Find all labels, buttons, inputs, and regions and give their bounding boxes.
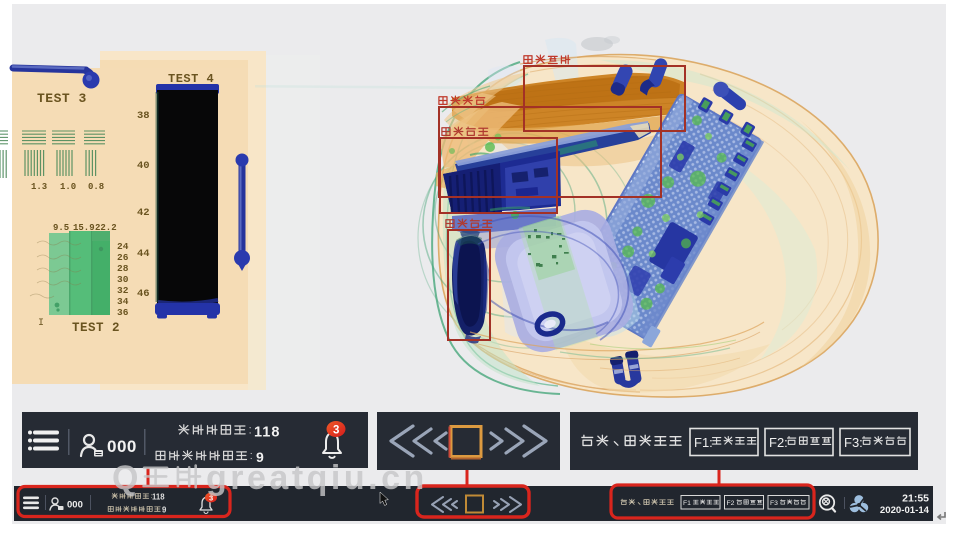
- svg-text:F3: F3: [770, 500, 778, 507]
- svg-text:34: 34: [117, 296, 129, 307]
- svg-text:26: 26: [117, 252, 129, 263]
- svg-text:38: 38: [137, 110, 150, 122]
- svg-text:21:55: 21:55: [902, 493, 929, 505]
- svg-text:F3:: F3:: [844, 435, 863, 450]
- svg-text:32: 32: [117, 285, 129, 296]
- svg-text:46: 46: [137, 288, 150, 300]
- svg-text:3: 3: [333, 425, 339, 437]
- svg-text:42: 42: [137, 207, 150, 219]
- svg-text:9: 9: [162, 506, 167, 515]
- svg-text:118: 118: [152, 493, 165, 502]
- svg-text:greatqiu.cn: greatqiu.cn: [206, 459, 428, 497]
- svg-text:I: I: [38, 318, 44, 329]
- svg-text:F2: F2: [727, 500, 735, 507]
- svg-text:TEST 4: TEST 4: [168, 72, 214, 86]
- svg-text:000: 000: [67, 500, 83, 511]
- svg-text:28: 28: [117, 263, 129, 274]
- svg-text:44: 44: [137, 248, 150, 260]
- svg-text:0.8: 0.8: [88, 182, 104, 192]
- svg-text:40: 40: [137, 160, 150, 172]
- svg-text:TEST 2: TEST 2: [72, 321, 120, 335]
- svg-text:Q: Q: [112, 459, 138, 497]
- svg-text:000: 000: [107, 437, 137, 456]
- svg-text:1.3: 1.3: [31, 182, 47, 192]
- svg-text:2020-01-14: 2020-01-14: [880, 505, 930, 516]
- svg-text:F1: F1: [683, 500, 691, 507]
- svg-text:30: 30: [117, 274, 129, 285]
- svg-text:22.2: 22.2: [95, 223, 117, 233]
- svg-text:15.9: 15.9: [73, 223, 95, 233]
- svg-text:36: 36: [117, 307, 129, 318]
- svg-text:24: 24: [117, 241, 129, 252]
- svg-text:F1:: F1:: [694, 435, 713, 450]
- svg-text:F2:: F2:: [769, 435, 788, 450]
- svg-text:TEST 3: TEST 3: [37, 91, 87, 106]
- svg-text:9.5: 9.5: [53, 223, 69, 233]
- svg-text:1.0: 1.0: [60, 182, 76, 192]
- svg-text:118: 118: [254, 425, 280, 441]
